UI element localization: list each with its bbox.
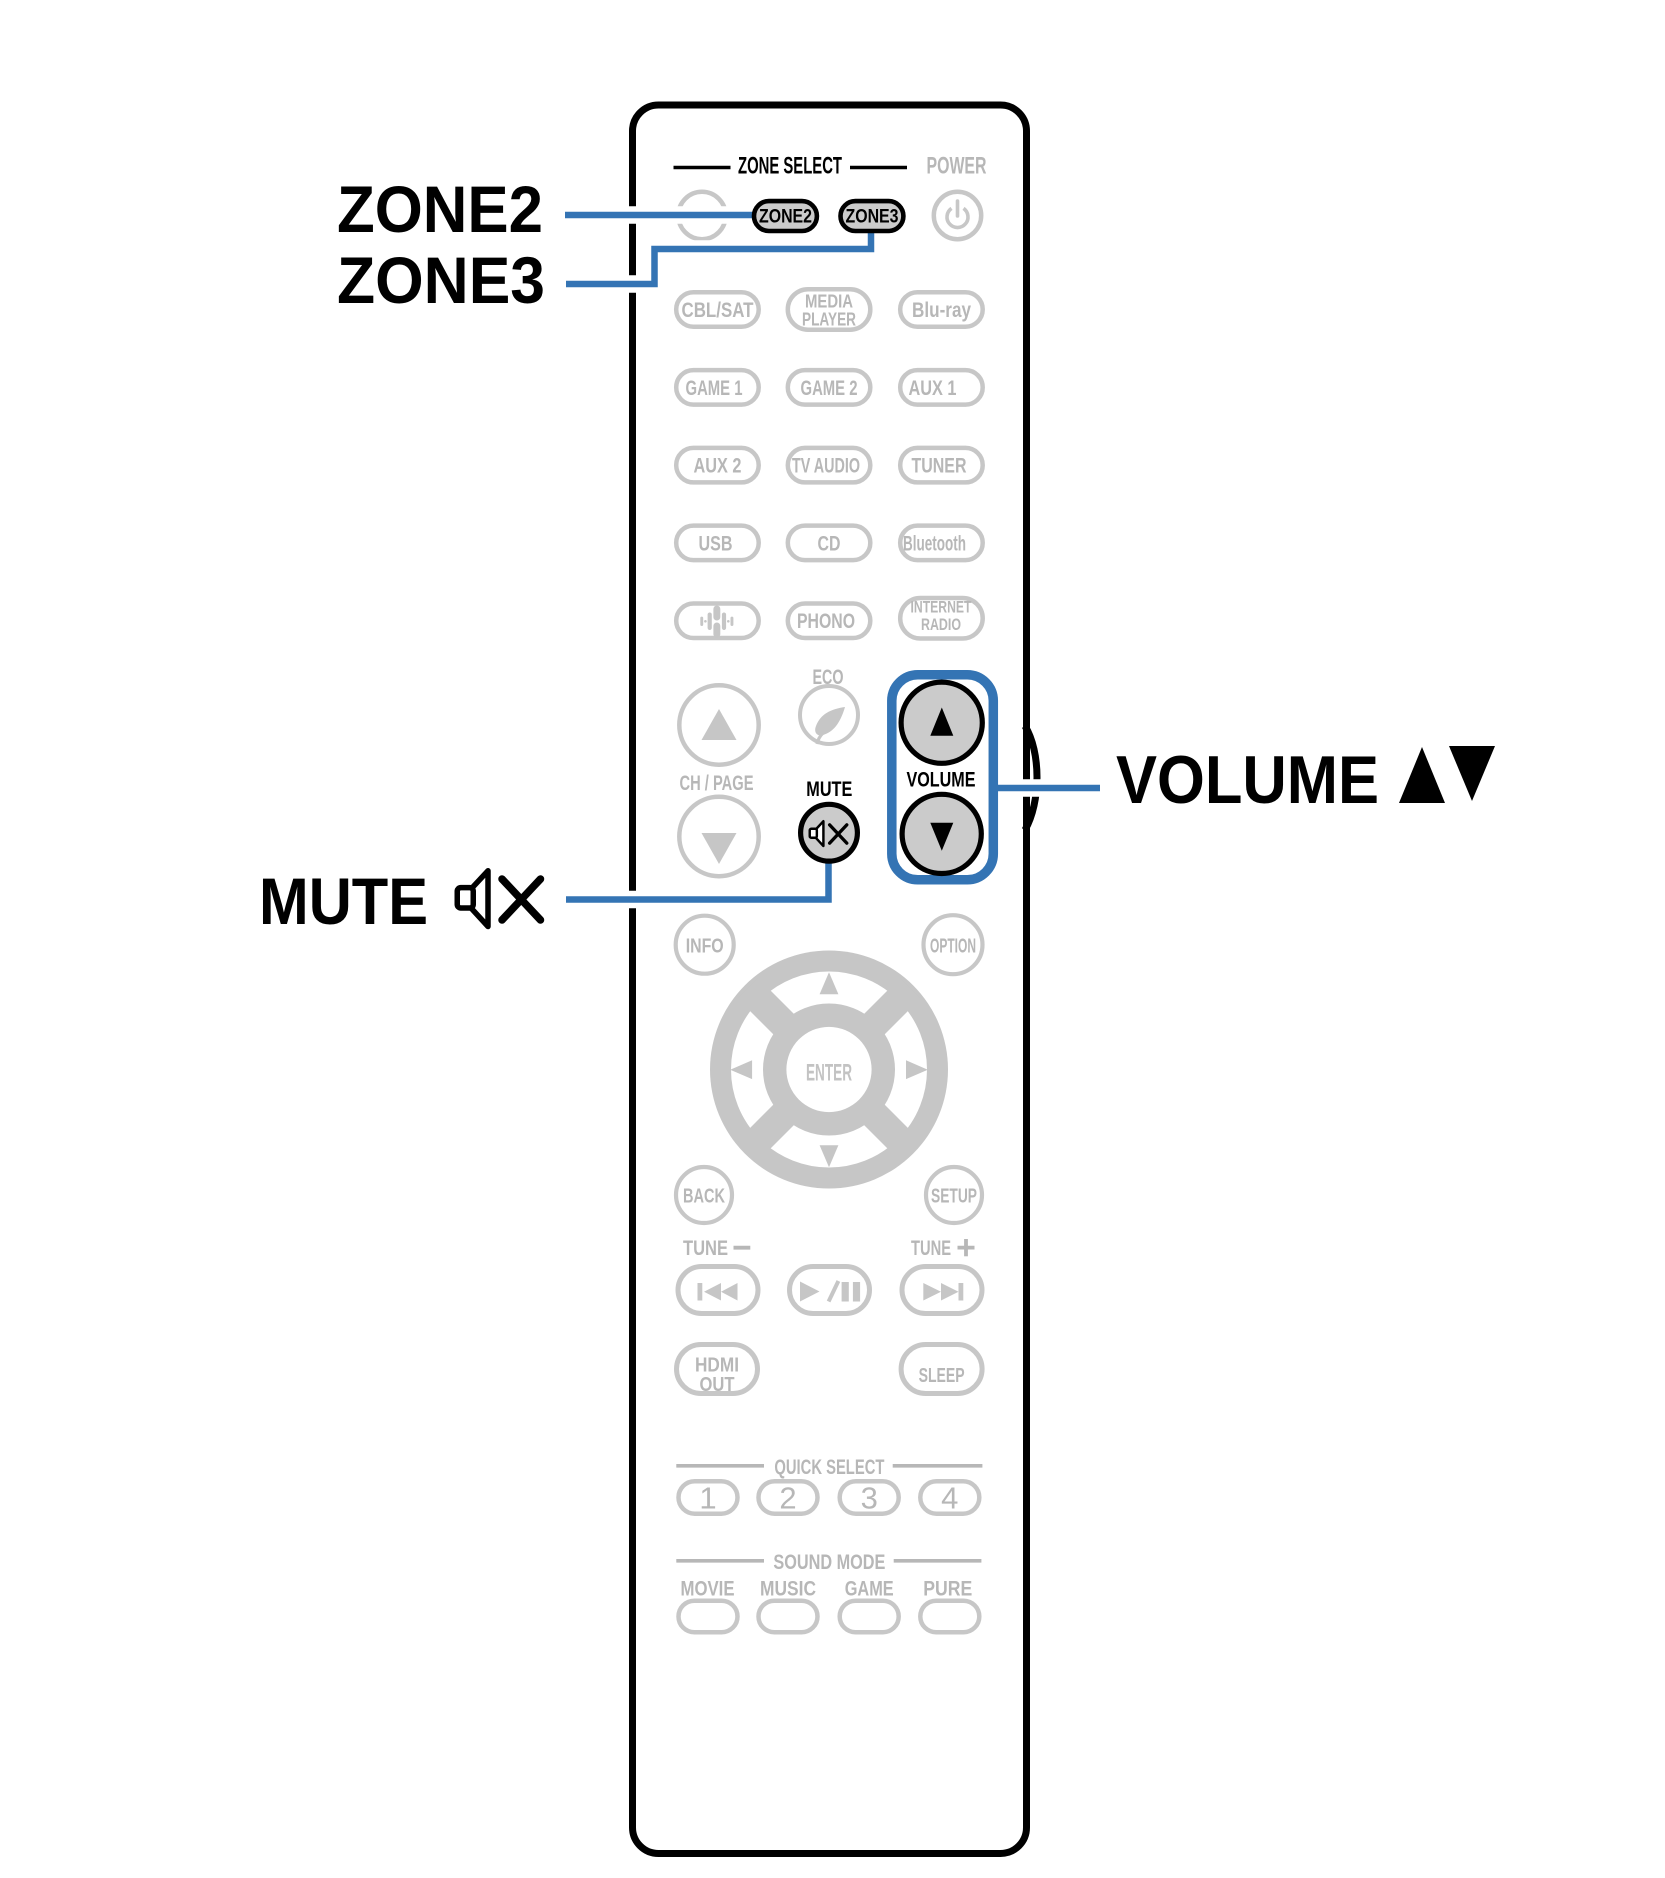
svg-text:GAME: GAME	[845, 1577, 894, 1601]
svg-text:BACK: BACK	[683, 1186, 725, 1208]
svg-text:TUNER: TUNER	[912, 455, 967, 478]
svg-text:SOUND MODE: SOUND MODE	[773, 1550, 885, 1574]
svg-text:PHONO: PHONO	[797, 610, 855, 633]
svg-text:CBL/SAT: CBL/SAT	[682, 299, 754, 322]
svg-text:4: 4	[941, 1481, 958, 1516]
svg-text:INFO: INFO	[686, 936, 724, 958]
svg-text:ZONE SELECT: ZONE SELECT	[738, 153, 842, 180]
svg-text:MOVIE: MOVIE	[681, 1577, 735, 1601]
svg-text:PLAYER: PLAYER	[802, 309, 856, 330]
svg-text:MUTE: MUTE	[806, 778, 852, 801]
svg-text:TUNE: TUNE	[683, 1236, 728, 1260]
svg-text:ZONE3: ZONE3	[846, 206, 899, 228]
svg-text:MUSIC: MUSIC	[760, 1577, 816, 1601]
svg-text:QUICK SELECT: QUICK SELECT	[774, 1455, 884, 1479]
svg-text:OUT: OUT	[700, 1374, 735, 1396]
svg-text:VOLUME: VOLUME	[1116, 742, 1379, 818]
svg-text:TUNE: TUNE	[911, 1236, 951, 1260]
svg-text:ZONE2: ZONE2	[337, 172, 543, 246]
svg-text:1: 1	[699, 1481, 716, 1516]
svg-text:RADIO: RADIO	[921, 616, 961, 634]
svg-text:OPTION: OPTION	[930, 936, 976, 958]
svg-text:GAME 2: GAME 2	[801, 377, 858, 400]
svg-text:SLEEP: SLEEP	[919, 1365, 965, 1387]
svg-text:CD: CD	[818, 532, 841, 555]
svg-text:INTERNET: INTERNET	[911, 599, 972, 617]
svg-text:3: 3	[861, 1481, 878, 1516]
svg-text:TV AUDIO: TV AUDIO	[792, 455, 860, 478]
svg-text:AUX 2: AUX 2	[694, 455, 742, 478]
svg-text:ZONE2: ZONE2	[759, 206, 812, 228]
svg-text:ZONE3: ZONE3	[337, 243, 545, 317]
svg-text:VOLUME: VOLUME	[907, 769, 976, 792]
svg-text:Blu-ray: Blu-ray	[912, 299, 971, 322]
svg-text:2: 2	[779, 1481, 796, 1516]
svg-text:USB: USB	[699, 532, 733, 555]
svg-text:SETUP: SETUP	[931, 1186, 977, 1208]
svg-text:CH / PAGE: CH / PAGE	[680, 772, 754, 795]
svg-text:Bluetooth: Bluetooth	[903, 532, 966, 555]
svg-text:ENTER: ENTER	[806, 1060, 852, 1087]
svg-text:POWER: POWER	[927, 153, 987, 180]
svg-text:MUTE: MUTE	[259, 864, 428, 938]
svg-text:GAME 1: GAME 1	[686, 377, 743, 400]
svg-text:AUX 1: AUX 1	[909, 377, 957, 400]
svg-text:PURE: PURE	[923, 1577, 972, 1601]
